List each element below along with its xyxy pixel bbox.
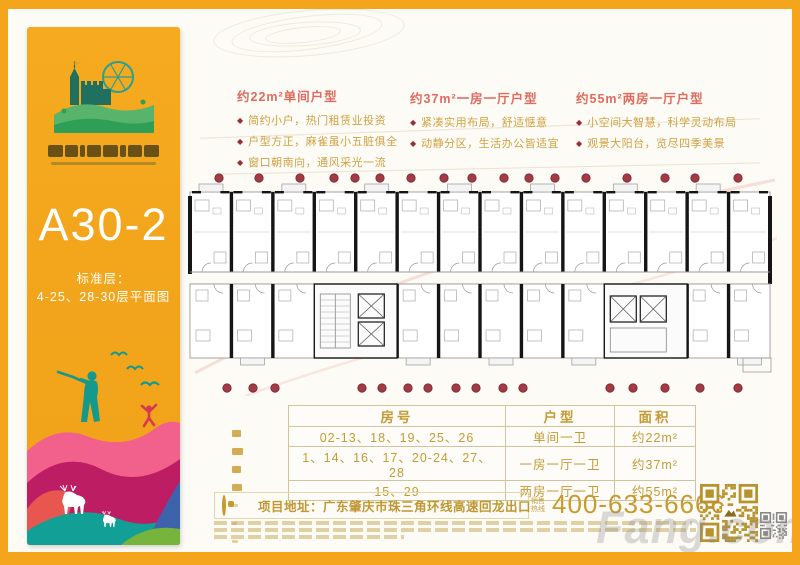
table-cell: 单间一卫 — [506, 427, 615, 447]
project-logo — [27, 49, 180, 146]
diamond-bullet-icon: ◆ — [576, 137, 582, 151]
poster-root: A30-2 标准层： 4-25、28-30层平面图 — [0, 0, 800, 565]
diamond-bullet-icon: ◆ — [410, 116, 416, 130]
logo-wordmark-blurred — [27, 145, 180, 157]
sketch-swirl-decor — [205, 2, 425, 64]
feature-section-55sqm: 约55m²两房一厅户型 ◆小空间大智慧，科学灵动布局 ◆观景大阳台，览尽四季美景 — [576, 88, 751, 158]
diamond-bullet-icon: ◆ — [237, 114, 243, 128]
table-cell: 1、14、16、17、20-24、27、28 — [289, 447, 506, 481]
feature-bullet: 户型方正，麻雀虽小五脏俱全 — [248, 135, 398, 149]
frame-border-left — [0, 0, 8, 565]
feature-bullet: 简约小户，热门租赁业投资 — [248, 114, 386, 128]
frame-border-bottom — [0, 552, 800, 565]
feature-section-22sqm: 约22m²单间户型 ◆简约小户，热门租赁业投资 ◆户型方正，麻雀虽小五脏俱全 ◆… — [237, 86, 412, 177]
table-cell: 约22m² — [615, 427, 696, 447]
disclaimer-text-blurred — [214, 521, 692, 525]
floor-plan — [185, 168, 777, 396]
feature-title: 约22m²单间户型 — [237, 86, 412, 105]
table-cell: 02-13、18、19、25、26 — [289, 427, 506, 447]
feature-bullet: 动静分区，生活办公皆适宜 — [421, 137, 559, 151]
golfer-silhouette — [58, 371, 100, 422]
feature-bullet: 小空间大智慧，科学灵动布局 — [587, 116, 737, 130]
table-header-cell: 房号 — [289, 406, 506, 427]
disclaimer-text-blurred — [214, 535, 404, 539]
feature-title: 约55m²两房一厅户型 — [576, 88, 751, 107]
table-cell: 一房一厅一卫 — [506, 447, 615, 481]
unit-table: 房号 户型 面积 02-13、18、19、25、26 单间一卫 约22m² 1、… — [288, 405, 696, 501]
feature-bullet: 紧凑实用布局，舒适惬意 — [421, 116, 548, 130]
table-header-row: 房号 户型 面积 — [289, 406, 696, 427]
diamond-bullet-icon: ◆ — [576, 116, 582, 130]
frame-border-right — [792, 0, 800, 565]
feature-title: 约37m²一房一厅户型 — [410, 88, 585, 107]
sidebar-artwork — [27, 333, 180, 545]
logo-subtitle-blurred — [51, 162, 156, 165]
floor-range: 标准层： 4-25、28-30层平面图 — [27, 270, 180, 306]
castle-logo-icon — [54, 49, 154, 141]
jumping-figure — [142, 405, 156, 426]
floor-plan-drawing — [185, 168, 777, 396]
feature-bullet: 观景大阳台，览尽四季美景 — [587, 137, 725, 151]
qr-code-gold — [700, 484, 758, 542]
feature-section-37sqm: 约37m²一房一厅户型 ◆紧凑实用布局，舒适惬意 ◆动静分区，生活办公皆适宜 — [410, 88, 585, 158]
project-address: 项目地址：广东肇庆市珠三角环线高速回龙出口 — [258, 496, 531, 515]
frame-border-top — [0, 0, 800, 9]
diamond-bullet-icon: ◆ — [237, 135, 243, 149]
table-row: 02-13、18、19、25、26 单间一卫 约22m² — [289, 427, 696, 447]
table-header-cell: 面积 — [615, 406, 696, 427]
hotline-label: 销售热线 — [531, 498, 547, 514]
disclaimer-text-blurred — [214, 528, 696, 532]
table-row: 1、14、16、17、20-24、27、28 一房一厅一卫 约37m² — [289, 447, 696, 481]
developer-wordmark-blurred — [231, 425, 244, 565]
diamond-bullet-icon: ◆ — [410, 137, 416, 151]
sidebar: A30-2 标准层： 4-25、28-30层平面图 — [27, 27, 180, 545]
table-header-cell: 户型 — [506, 406, 615, 427]
table-cell: 约37m² — [615, 447, 696, 481]
developer-logo-icon — [222, 495, 226, 516]
qr-code-small — [760, 512, 787, 539]
address-box: 项目地址：广东肇庆市珠三角环线高速回龙出口 — [214, 492, 529, 519]
plan-code: A30-2 — [27, 199, 180, 251]
